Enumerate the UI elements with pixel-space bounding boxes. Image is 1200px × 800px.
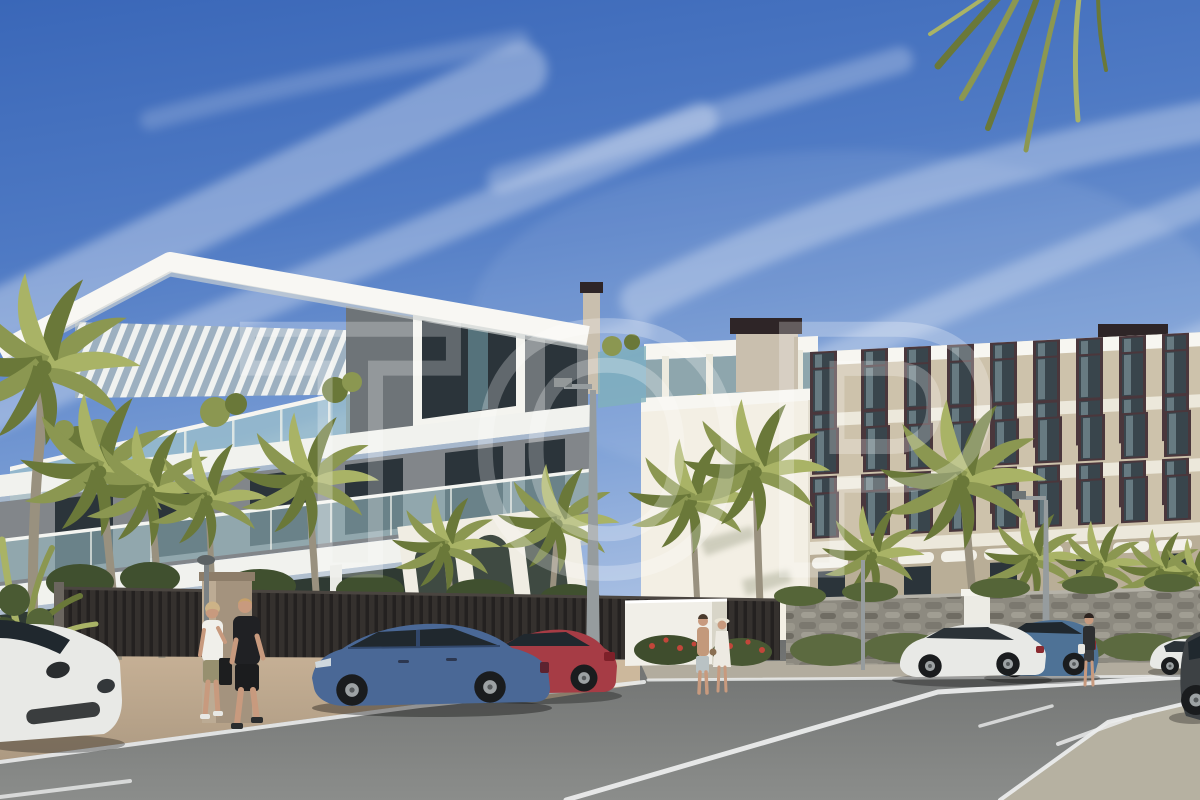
property-exterior-render: TOP xyxy=(0,0,1200,800)
watermark: TOP xyxy=(243,254,1016,645)
screenshot-canvas: TOP xyxy=(0,0,1200,800)
